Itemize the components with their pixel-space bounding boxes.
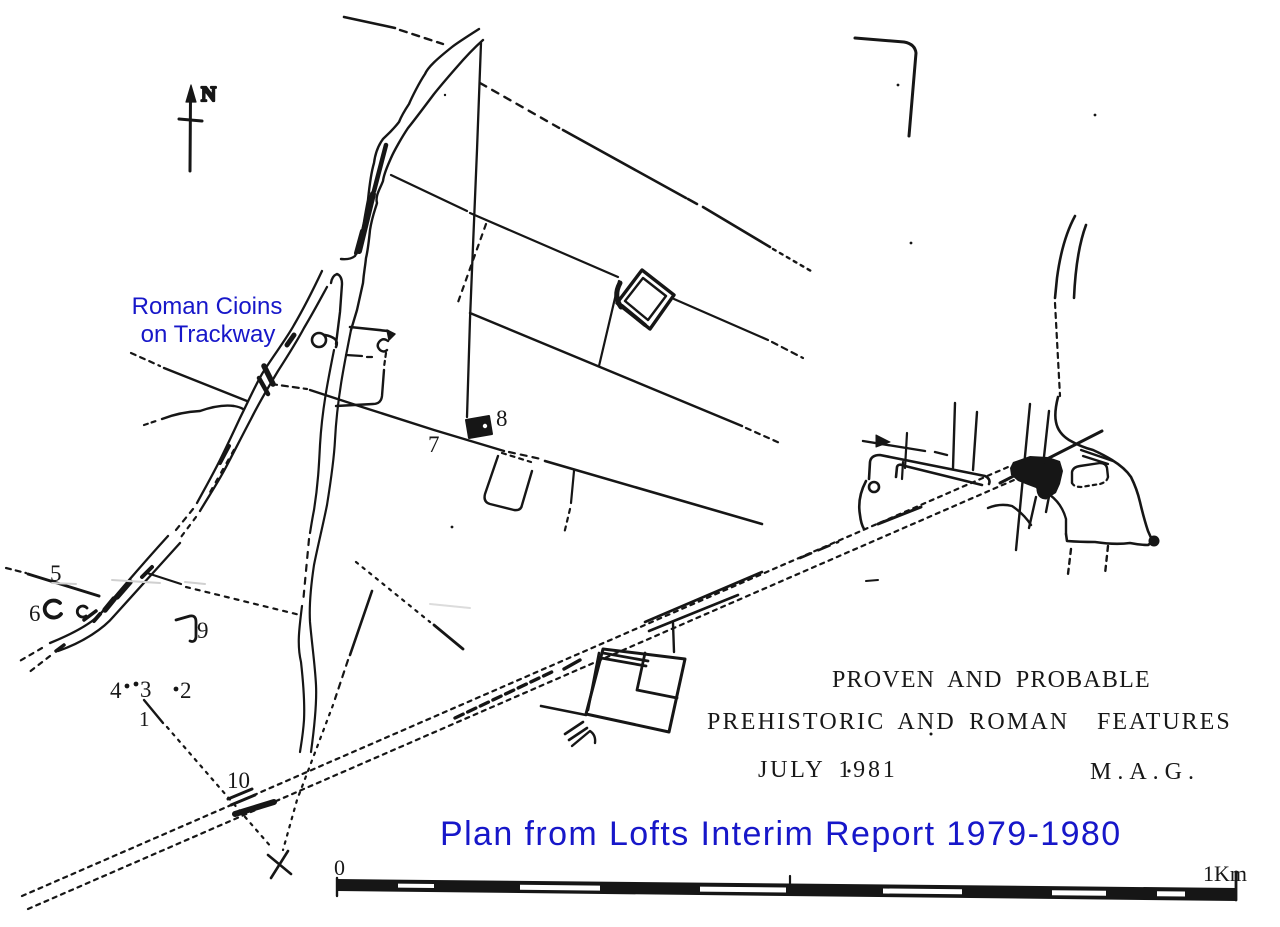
svg-text:FEATURES: FEATURES [1097,709,1232,735]
svg-text:3: 3 [140,677,152,702]
svg-text:Plan from Lofts Interim Report: Plan from Lofts Interim Report 1979-1980 [440,815,1122,853]
svg-text:0: 0 [334,855,345,880]
svg-text:1: 1 [139,707,150,731]
svg-text:1Km: 1Km [1203,861,1247,886]
svg-text:9: 9 [197,618,209,643]
svg-text:5: 5 [50,561,62,586]
svg-text:Roman Cioins: Roman Cioins [132,293,283,320]
svg-text:M.A.G.: M.A.G. [1090,759,1200,785]
svg-text:JULY 1981: JULY 1981 [758,757,898,783]
svg-text:6: 6 [29,601,41,626]
svg-text:2: 2 [180,678,192,703]
svg-text:on Trackway: on Trackway [141,321,276,348]
svg-text:PREHISTORIC AND ROMAN: PREHISTORIC AND ROMAN [707,709,1069,735]
svg-text:4: 4 [110,678,122,703]
svg-text:8: 8 [496,406,508,431]
svg-text:7: 7 [428,432,440,457]
svg-text:10: 10 [227,768,250,793]
svg-text:PROVEN AND PROBABLE: PROVEN AND PROBABLE [832,667,1151,693]
svg-text:N: N [201,82,216,106]
